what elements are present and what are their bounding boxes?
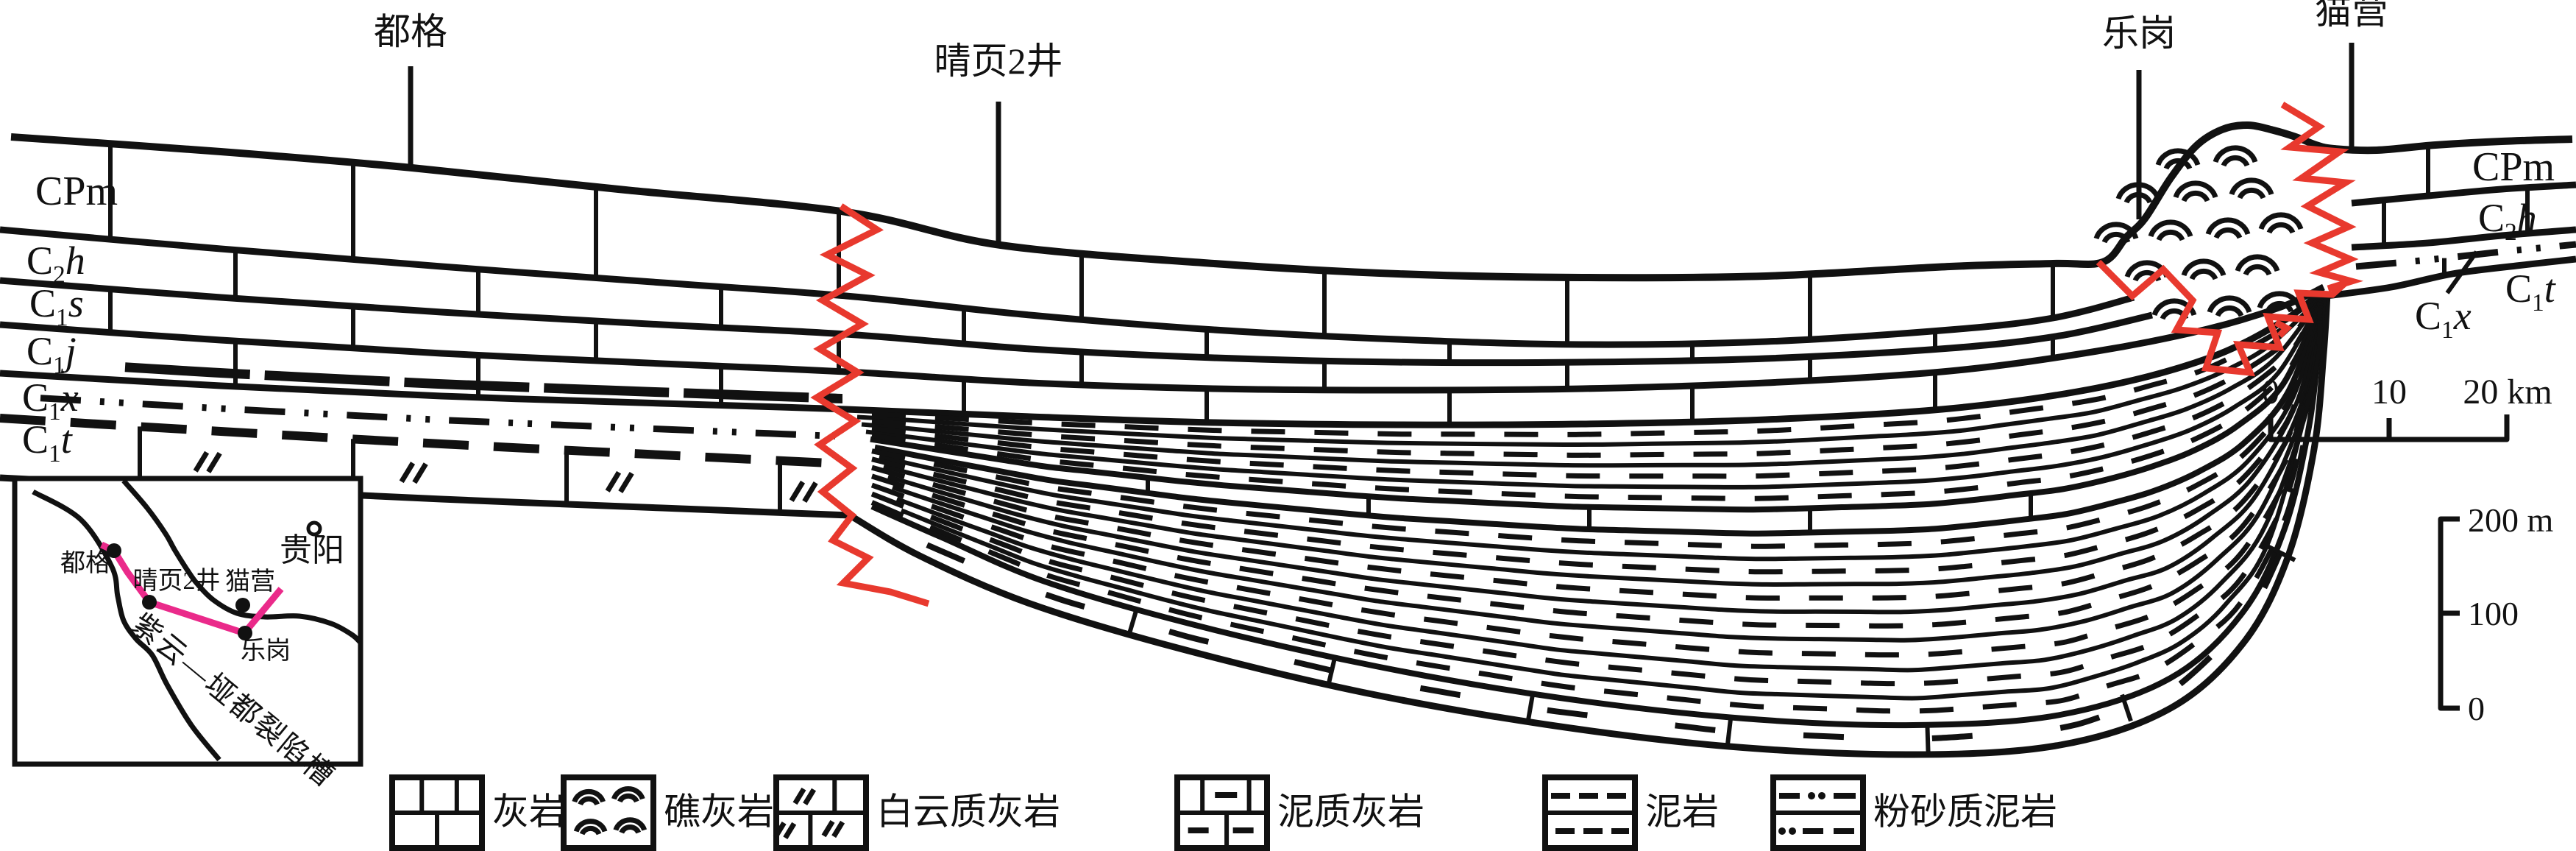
inset-location-map: 都格晴页2井猫营乐岗贵阳紫云—垭都裂陷槽	[15, 479, 361, 794]
inset-label-legang: 乐岗	[241, 638, 291, 665]
strata-label-left-C1s: C1s	[29, 281, 84, 331]
c1j-dark-streak	[125, 367, 842, 399]
inset-label-duge: 都格	[60, 549, 110, 577]
c1t-dolomite-mark	[196, 453, 220, 472]
legend-label-argillaceous-limestone: 泥质灰岩	[1277, 791, 1424, 832]
floor-unit-joint	[1129, 609, 1137, 633]
location-label-maoying: 猫营	[2315, 0, 2388, 32]
vertical-scale-bar	[2441, 519, 2460, 708]
inset-label-maoying: 猫营	[225, 568, 275, 596]
reef-arc-symbol	[616, 820, 645, 833]
strata-label-right-C1x: C1x	[2415, 294, 2472, 344]
legend: 灰岩礁灰岩白云质灰岩泥质灰岩泥岩粉砂质泥岩	[392, 777, 2057, 848]
location-label-duge: 都格	[374, 11, 447, 52]
c1t-dolomite-mark	[402, 463, 426, 482]
basin-fill-boundary	[897, 320, 2321, 670]
legend-dot	[1789, 827, 1796, 835]
legend-slash	[824, 822, 843, 836]
inset-dot-maoying	[235, 598, 250, 612]
scale-bars: 01020 km200 m1000	[2262, 372, 2554, 727]
cpm-base-line	[0, 230, 2134, 345]
reef-arc-symbol	[2176, 183, 2215, 201]
reef-arc-symbol	[576, 822, 605, 834]
legend-item-mudstone	[1545, 777, 1635, 848]
c1x-base-dashed-line	[0, 418, 845, 464]
inset-label-qingye2-well: 晴页2井	[133, 567, 221, 595]
c1t-dolomite-mark	[608, 473, 632, 492]
strata-label-left-CPm: CPm	[35, 169, 118, 214]
v-scale-200m: 200 m	[2468, 501, 2554, 539]
lithology-patterns	[40, 144, 2527, 752]
location-label-qingye2-well: 晴页2井	[934, 40, 1063, 82]
strata-label-right-C1t: C1t	[2505, 266, 2557, 317]
v-scale-0: 0	[2468, 690, 2485, 727]
strata-label-left-C1t: C1t	[22, 417, 74, 467]
reef-arc-symbol	[2232, 180, 2271, 198]
legend-item-dolomitic-limestone	[776, 777, 866, 848]
inset-city-label: 贵阳	[280, 532, 344, 568]
legend-label-dolomitic-limestone: 白云质灰岩	[876, 791, 1060, 832]
location-label-legang: 乐岗	[2102, 13, 2176, 54]
reef-arc-symbol	[2215, 148, 2255, 166]
strata-label-right-CPm: CPm	[2472, 144, 2555, 190]
reef-arc-symbol	[2208, 220, 2248, 238]
strata-label-left-C1j: C1j	[26, 329, 77, 379]
legend-item-reef-limestone	[564, 777, 653, 848]
inset-dot-qingye2-well	[142, 595, 157, 610]
floor-unit-joint	[1927, 725, 1928, 752]
legend-label-silty-mudstone: 粉砂质泥岩	[1873, 791, 2057, 832]
floor-unit-joint	[1528, 694, 1533, 721]
topographic-surface-line	[11, 125, 2572, 278]
reef-arc-symbol	[2238, 257, 2277, 275]
h-scale-10: 10	[2371, 372, 2407, 412]
v-scale-100: 100	[2468, 595, 2519, 632]
legend-item-limestone	[392, 777, 482, 848]
h-scale-0: 0	[2262, 372, 2279, 412]
reef-arc-symbol	[575, 791, 603, 804]
reef-arc-symbol	[2184, 261, 2224, 279]
legend-label-reef-limestone: 礁灰岩	[664, 791, 774, 832]
reef-arc-symbol	[2261, 215, 2301, 233]
reef-arc-symbol	[2210, 298, 2249, 316]
legend-label-limestone: 灰岩	[492, 791, 566, 832]
legend-slash	[795, 789, 815, 804]
floor-unit-joint	[1728, 718, 1731, 745]
strata-label-right-C2h: C2h	[2478, 196, 2537, 246]
legend-label-mudstone: 泥岩	[1645, 791, 1719, 832]
floor-unit-joint	[1329, 657, 1335, 683]
legend-dot	[1818, 792, 1825, 799]
legend-box	[564, 777, 653, 848]
legend-item-argillaceous-limestone	[1177, 777, 1267, 848]
legend-dot	[1808, 792, 1815, 799]
c1t-dolomite-mark	[792, 482, 816, 501]
legend-dot	[1778, 827, 1786, 835]
basin-fill-boundary	[901, 324, 2321, 699]
h-scale-20km: 20 km	[2463, 372, 2552, 412]
figure-canvas: 都格晴页2井乐岗猫营CPmC2hC1sC1jC1xC1tCPmC2hC1xC1t…	[0, 0, 2576, 851]
legend-item-silty-mudstone	[1773, 777, 1863, 848]
geological-cross-section-figure: 都格晴页2井乐岗猫营CPmC2hC1sC1jC1xC1tCPmC2hC1xC1t…	[0, 0, 2576, 851]
reef-arc-symbol	[614, 789, 642, 802]
left-basin-fault	[817, 206, 929, 604]
reef-arc-symbol	[2151, 222, 2190, 240]
cross-section-strata	[0, 125, 2576, 755]
